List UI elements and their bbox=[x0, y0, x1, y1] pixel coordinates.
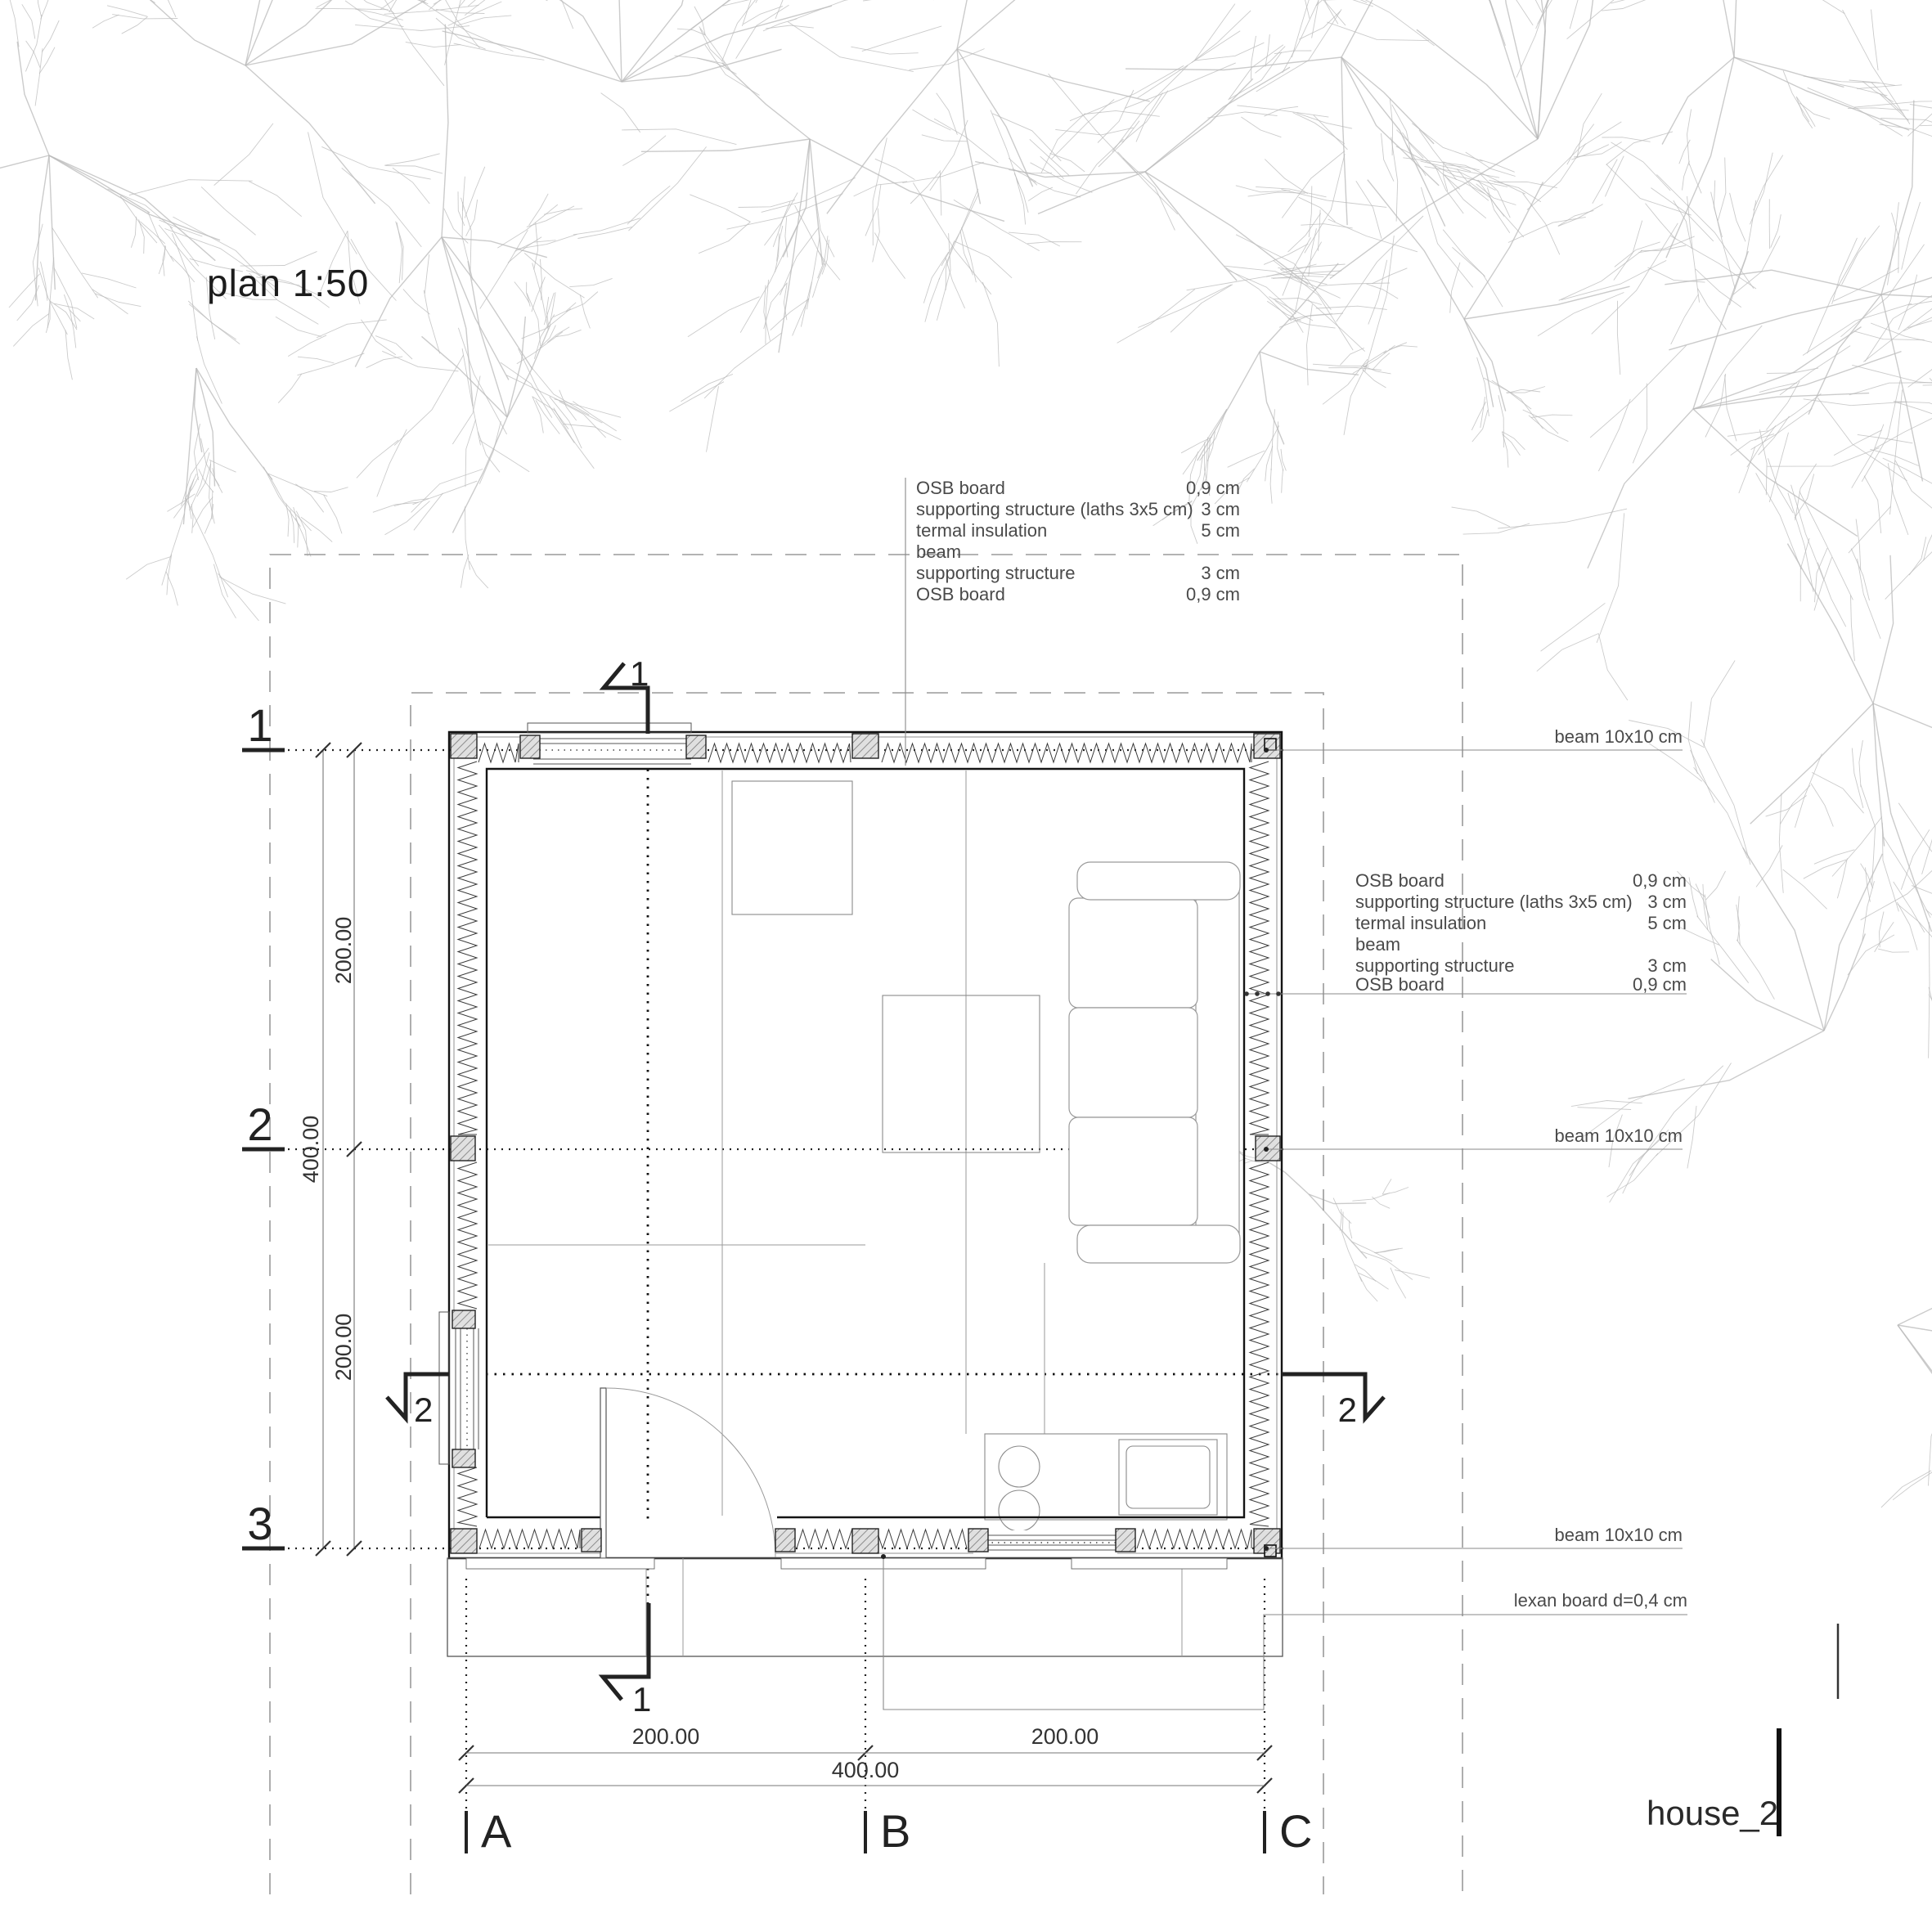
grid-row-3-label: 3 bbox=[247, 1498, 272, 1549]
lexan-callout: lexan board d=0,4 cm bbox=[1514, 1590, 1687, 1611]
leader-dot bbox=[1244, 991, 1249, 996]
entrance-door bbox=[600, 1388, 775, 1558]
window-top bbox=[528, 723, 691, 767]
grid-column-labels: A B C bbox=[466, 1805, 1312, 1857]
beam-callout-bottom: beam 10x10 cm bbox=[1554, 1525, 1683, 1545]
coffee-table bbox=[883, 995, 1040, 1152]
window-left bbox=[439, 1312, 485, 1464]
layer-value: 0,9 cm bbox=[1186, 478, 1240, 498]
section-1-marker-bottom: 1 bbox=[632, 1680, 651, 1719]
floor-plan-drawing: 1 2 3 A B C 1 1 2 2 200.00 200.00 400.00… bbox=[0, 0, 1932, 1932]
cooktop-burner bbox=[999, 1446, 1040, 1487]
interior-floor-lines bbox=[488, 771, 1045, 1516]
layer-value: 0,9 cm bbox=[1186, 584, 1240, 604]
layer-value: 3 cm bbox=[1647, 955, 1687, 976]
layer-label: supporting structure (laths 3x5 cm) bbox=[916, 499, 1193, 519]
section-2-marker-left: 2 bbox=[414, 1391, 433, 1429]
sink-outer bbox=[1119, 1440, 1217, 1515]
layer-label: beam bbox=[916, 541, 961, 562]
sheet-title-block: house_2 bbox=[1647, 1624, 1838, 1836]
dim-bottom-200-right: 200.00 bbox=[1031, 1724, 1099, 1749]
layer-label: beam bbox=[1355, 934, 1400, 955]
window-bottom bbox=[973, 1530, 1117, 1555]
dim-left-200-lower: 200.00 bbox=[331, 1314, 356, 1382]
layer-label: supporting structure (laths 3x5 cm) bbox=[1355, 892, 1633, 912]
sheet-label: house_2 bbox=[1647, 1794, 1778, 1832]
window-sill-plate bbox=[1072, 1558, 1227, 1569]
page-title: plan 1:50 bbox=[207, 262, 369, 304]
layer-value: 3 cm bbox=[1201, 499, 1240, 519]
wall-layers-annotation-top: OSB board 0,9 cm supporting structure (l… bbox=[905, 478, 1240, 766]
layer-value: 5 cm bbox=[1201, 520, 1240, 541]
beam-callout-top: beam 10x10 cm bbox=[1554, 726, 1683, 747]
layer-value: 3 cm bbox=[1647, 892, 1687, 912]
layer-label: termal insulation bbox=[916, 520, 1047, 541]
layer-value: 0,9 cm bbox=[1633, 974, 1687, 995]
grid-row-1-label: 1 bbox=[247, 699, 272, 751]
section-1-marker-top: 1 bbox=[630, 654, 649, 693]
architectural-sheet: { "title": "plan 1:50", "sheet": { "labe… bbox=[0, 0, 1932, 1932]
grid-row-2-label: 2 bbox=[247, 1099, 272, 1150]
section-2-marker-right: 2 bbox=[1338, 1391, 1357, 1429]
dim-left-400-total: 400.00 bbox=[299, 1116, 323, 1184]
sink-basin bbox=[1126, 1446, 1210, 1508]
beam-callout-mid: beam 10x10 cm bbox=[1554, 1126, 1683, 1146]
leader-dot bbox=[1255, 991, 1260, 996]
leader-dot bbox=[1276, 991, 1281, 996]
window-sill-plate bbox=[466, 1558, 654, 1569]
layer-label: supporting structure bbox=[1355, 955, 1514, 976]
layer-label: OSB board bbox=[1355, 974, 1445, 995]
layer-value: 0,9 cm bbox=[1633, 870, 1687, 891]
leader-dot bbox=[1265, 991, 1270, 996]
beam-callouts: beam 10x10 cm beam 10x10 cm beam 10x10 c… bbox=[881, 726, 1687, 1710]
leader-dot bbox=[1264, 1546, 1269, 1551]
layer-label: OSB board bbox=[916, 584, 1005, 604]
grid-col-B-label: B bbox=[880, 1805, 910, 1857]
wall-layers-annotation-right: OSB board 0,9 cm supporting structure (l… bbox=[1244, 870, 1687, 996]
sofa bbox=[1069, 862, 1240, 1263]
cooktop-burner bbox=[999, 1490, 1040, 1531]
dim-bottom-400-total: 400.00 bbox=[832, 1758, 900, 1782]
leader-dot bbox=[881, 1554, 886, 1559]
grid-col-A-label: A bbox=[481, 1805, 512, 1857]
bed-square bbox=[732, 781, 852, 914]
grid-row-labels: 1 2 3 bbox=[242, 699, 285, 1549]
dim-left-200-upper: 200.00 bbox=[331, 917, 356, 985]
leader-dot bbox=[1264, 748, 1269, 753]
layer-value: 3 cm bbox=[1201, 563, 1240, 583]
leader-dot bbox=[1264, 1147, 1269, 1152]
grid-col-C-label: C bbox=[1279, 1805, 1312, 1857]
layer-label: OSB board bbox=[1355, 870, 1445, 891]
layer-label: OSB board bbox=[916, 478, 1005, 498]
layer-label: supporting structure bbox=[916, 563, 1075, 583]
layer-label: termal insulation bbox=[1355, 913, 1486, 933]
dim-bottom-200-left: 200.00 bbox=[632, 1724, 700, 1749]
layer-value: 5 cm bbox=[1647, 913, 1687, 933]
terrace-platform bbox=[447, 1558, 1283, 1656]
